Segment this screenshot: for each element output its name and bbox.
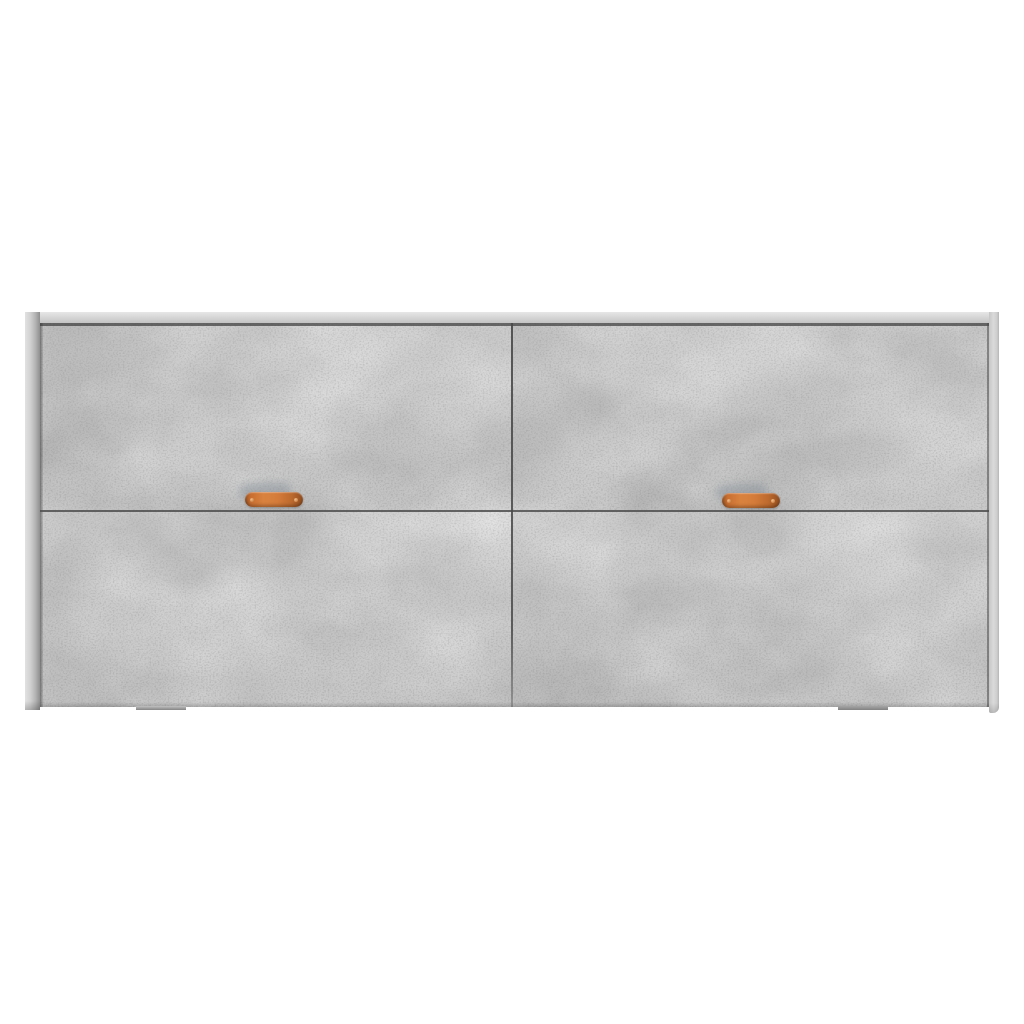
handle-left [245, 492, 303, 507]
pull-strap [245, 492, 303, 507]
rivet-icon [727, 499, 731, 503]
left-gap-line [40, 323, 43, 707]
left-side-panel [25, 312, 40, 710]
top-panel [25, 312, 999, 323]
vertical-door-seam [511, 323, 513, 707]
photo-canvas [0, 0, 1024, 1024]
foot-left [136, 706, 186, 710]
rivet-icon [250, 498, 254, 502]
door-shade [513, 512, 989, 707]
right-side-panel [989, 312, 999, 713]
door-bottom-right [513, 512, 989, 707]
doors-area [40, 323, 989, 707]
door-bottom-left [40, 512, 511, 707]
door-shade [513, 325, 989, 510]
door-top-right [513, 325, 989, 510]
foot-right [838, 706, 888, 710]
handle-right [722, 493, 780, 508]
top-gap-line [40, 323, 989, 326]
pull-strap [722, 493, 780, 508]
door-shade [40, 512, 511, 707]
sideboard [25, 312, 999, 714]
door-top-left [40, 325, 511, 510]
rivet-icon [294, 498, 298, 502]
horizontal-door-seam [40, 510, 989, 512]
rivet-icon [771, 499, 775, 503]
